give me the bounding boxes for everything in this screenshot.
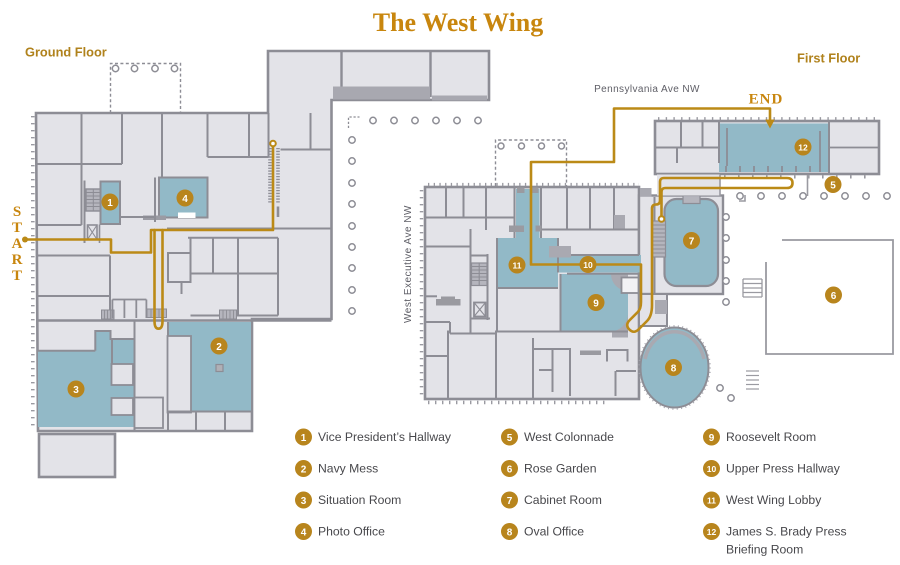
svg-text:Rose Garden: Rose Garden [524,462,597,476]
svg-text:1: 1 [301,433,307,444]
svg-text:4: 4 [182,194,188,205]
svg-text:T: T [12,268,22,284]
svg-text:12: 12 [798,142,808,152]
svg-text:10: 10 [583,260,593,270]
svg-text:5: 5 [830,180,836,191]
svg-text:Oval Office: Oval Office [524,525,584,539]
svg-text:Ground Floor: Ground Floor [25,45,107,60]
svg-text:T: T [12,220,22,236]
svg-text:11: 11 [707,496,716,506]
svg-text:West Executive Ave NW: West Executive Ave NW [403,205,414,323]
svg-text:Upper Press Hallway: Upper Press Hallway [726,462,841,476]
svg-text:Cabinet Room: Cabinet Room [524,493,602,507]
svg-text:11: 11 [513,260,522,270]
svg-text:9: 9 [709,433,715,444]
svg-text:West Wing Lobby: West Wing Lobby [726,493,822,507]
svg-text:S: S [13,204,21,220]
svg-text:Situation Room: Situation Room [318,493,401,507]
svg-text:6: 6 [507,464,513,475]
svg-text:Photo Office: Photo Office [318,525,385,539]
svg-text:9: 9 [593,298,599,309]
svg-text:1: 1 [107,198,113,209]
svg-text:R: R [12,252,23,268]
svg-text:4: 4 [301,527,307,538]
svg-text:Pennsylvania Ave NW: Pennsylvania Ave NW [594,84,700,95]
svg-text:West Colonnade: West Colonnade [524,430,614,444]
svg-text:The West Wing: The West Wing [373,8,544,37]
svg-text:3: 3 [73,385,79,396]
svg-text:Briefing Room: Briefing Room [726,543,803,557]
svg-text:2: 2 [301,464,307,475]
svg-text:8: 8 [671,363,677,374]
svg-text:2: 2 [216,342,222,353]
svg-text:3: 3 [301,496,307,507]
svg-text:7: 7 [689,236,695,247]
svg-text:James S. Brady Press: James S. Brady Press [726,525,847,539]
svg-text:5: 5 [507,433,513,444]
svg-text:A: A [12,236,23,252]
svg-text:10: 10 [707,464,717,474]
svg-text:First Floor: First Floor [797,51,860,66]
svg-text:12: 12 [707,527,717,537]
svg-text:Roosevelt Room: Roosevelt Room [726,430,816,444]
svg-text:6: 6 [831,291,837,302]
svg-text:Vice President’s Hallway: Vice President’s Hallway [318,430,452,444]
svg-text:END: END [749,92,784,108]
svg-text:8: 8 [507,527,513,538]
svg-text:Navy Mess: Navy Mess [318,462,378,476]
svg-text:7: 7 [507,496,513,507]
